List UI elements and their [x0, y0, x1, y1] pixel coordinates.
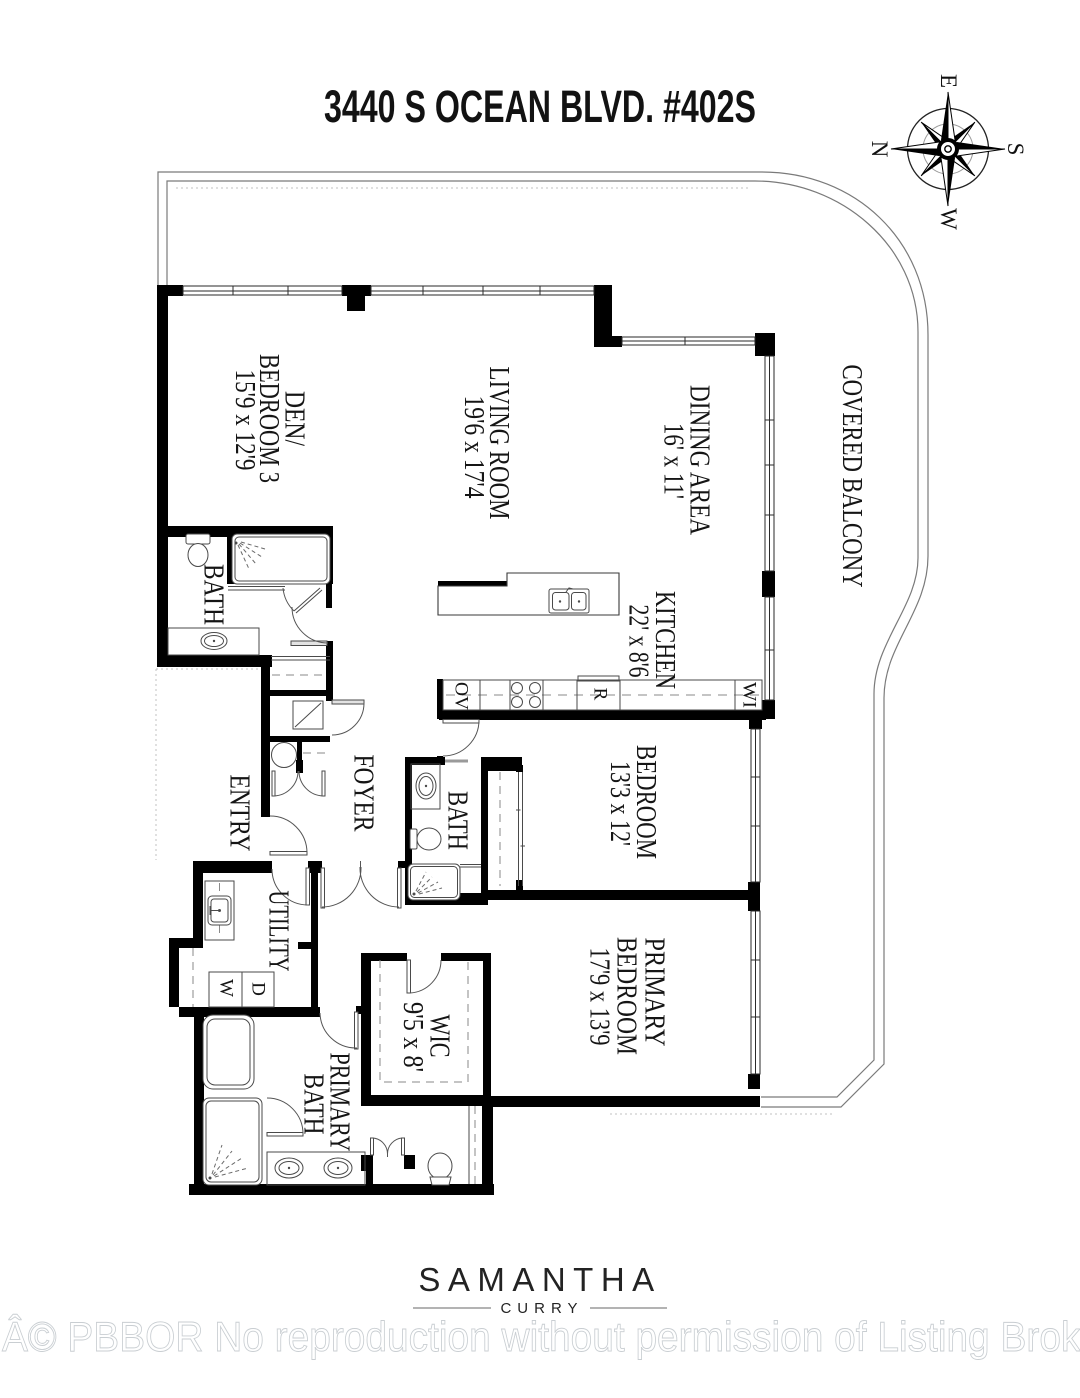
- svg-text:3440 S OCEAN BLVD. #402S: 3440 S OCEAN BLVD. #402S: [324, 81, 756, 132]
- svg-text:UTILITY: UTILITY: [262, 891, 294, 972]
- svg-text:S: S: [1003, 143, 1028, 156]
- svg-text:N: N: [867, 141, 892, 158]
- svg-text:E: E: [936, 74, 961, 88]
- svg-text:R: R: [590, 688, 611, 701]
- svg-text:ENTRY: ENTRY: [223, 775, 255, 852]
- svg-text:W: W: [936, 208, 961, 230]
- svg-text:OV: OV: [451, 682, 472, 710]
- svg-text:16' x 11': 16' x 11': [657, 423, 689, 499]
- svg-text:19'6 x 17'4: 19'6 x 17'4: [458, 396, 490, 499]
- svg-text:D: D: [248, 982, 269, 996]
- svg-text:22' x 8'6: 22' x 8'6: [622, 605, 654, 678]
- svg-text:BATH: BATH: [197, 564, 229, 625]
- svg-text:FOYER: FOYER: [347, 755, 379, 833]
- svg-text:9'5 x 8': 9'5 x 8': [397, 1002, 429, 1072]
- svg-text:W: W: [216, 979, 237, 997]
- svg-text:COVERED BALCONY: COVERED BALCONY: [836, 365, 868, 588]
- svg-text:15'9 x 12'9: 15'9 x 12'9: [229, 370, 261, 471]
- svg-text:Â© PBBOR No reproduction witho: Â© PBBOR No reproduction without permiss…: [2, 1313, 1080, 1360]
- svg-text:17'9 x 13'9: 17'9 x 13'9: [583, 948, 615, 1046]
- svg-text:WI: WI: [739, 682, 760, 708]
- svg-text:SAMANTHA: SAMANTHA: [418, 1261, 661, 1298]
- svg-text:BATH: BATH: [441, 791, 473, 850]
- svg-text:13'3 x 12': 13'3 x 12': [604, 761, 636, 846]
- svg-text:BATH: BATH: [297, 1074, 329, 1135]
